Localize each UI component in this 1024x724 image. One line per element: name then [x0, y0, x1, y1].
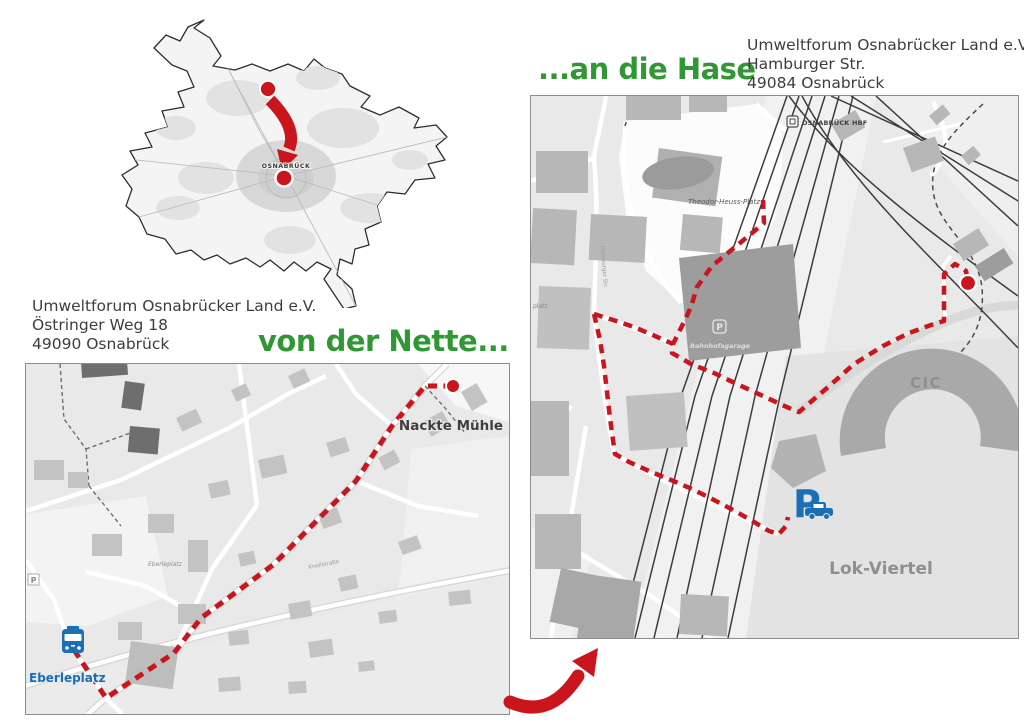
square-small-label: Eberleplatz [148, 561, 183, 568]
svg-text:P: P [31, 576, 37, 585]
destination-dot-hase [960, 275, 976, 291]
destination-label: Nackte Mühle [399, 418, 503, 434]
address-org: Umweltforum Osnabrücker Land e.V. [32, 297, 316, 316]
address-block-hase: Umweltforum Osnabrücker Land e.V. Hambur… [747, 36, 1024, 93]
address-city: 49084 Osnabrück [747, 74, 1024, 93]
edge-fragment-label: platz [533, 303, 548, 310]
destination-dot-nette [446, 379, 460, 393]
detail-map-hase-canvas: OSNABRÜCK HBF Theodor-Heuss-Platz P Bahn… [531, 96, 1018, 638]
district-label: Lok-Viertel [829, 559, 933, 579]
detail-map-nette-canvas: Nackte Mühle Eberleplatz Knollstraße P E… [26, 364, 509, 714]
train-station-icon [787, 116, 798, 127]
address-street: Hamburger Str. [747, 55, 1024, 74]
heading-an-die-hase: ...an die Hase [538, 52, 756, 86]
svg-text:P: P [716, 323, 723, 333]
bus-icon [62, 626, 84, 653]
transition-arrow [500, 636, 620, 721]
small-parking-icon: P [28, 574, 39, 585]
cic-label: CIC [910, 374, 942, 392]
bus-stop-label: Eberleplatz [29, 671, 106, 685]
plaza-label: Theodor-Heuss-Platz [688, 198, 760, 206]
address-org: Umweltforum Osnabrücker Land e.V. [747, 36, 1024, 55]
flyer-page: OSNABRÜCK Umweltforum Osnabrücker Land e… [0, 0, 1024, 724]
detail-map-hase: OSNABRÜCK HBF Theodor-Heuss-Platz P Bahn… [530, 95, 1019, 639]
overview-marker-nette [260, 81, 276, 97]
garage-label: Bahnhofsgarage [690, 342, 751, 350]
heading-von-der-nette: von der Nette... [258, 324, 494, 358]
station-label: OSNABRÜCK HBF [802, 118, 867, 127]
detail-map-nette: Nackte Mühle Eberleplatz Knollstraße P E… [25, 363, 510, 715]
overview-map: OSNABRÜCK [118, 8, 448, 308]
overview-marker-hase [276, 170, 293, 187]
